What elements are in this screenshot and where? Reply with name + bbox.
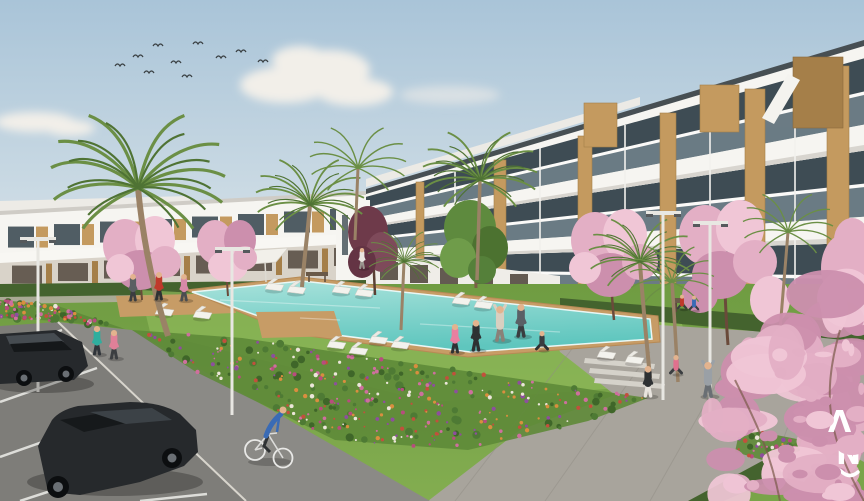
pool-deck-inset	[256, 311, 342, 338]
house-pillar	[322, 248, 328, 272]
render-image: Λ N	[0, 0, 864, 501]
terraced-houses	[0, 191, 374, 293]
scene: Λ N	[0, 0, 864, 501]
house-window	[54, 224, 80, 245]
house-pillar	[92, 261, 98, 285]
house-terrace-opening	[58, 263, 88, 281]
house-wood-slat	[266, 214, 278, 235]
